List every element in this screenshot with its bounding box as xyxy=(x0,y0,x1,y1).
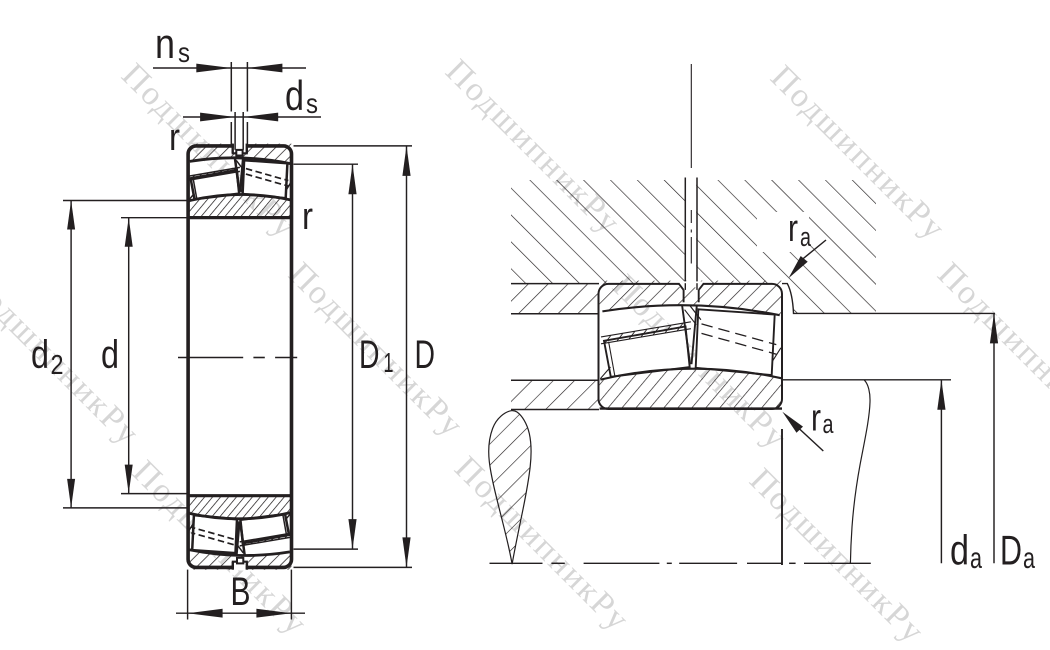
svg-text:a: a xyxy=(823,409,835,439)
svg-text:r: r xyxy=(302,196,313,238)
svg-text:ПодшипникРу: ПодшипникРу xyxy=(930,255,1050,445)
svg-text:ПодшипникРу: ПодшипникРу xyxy=(1045,445,1050,635)
svg-text:s: s xyxy=(178,37,190,68)
svg-text:r: r xyxy=(169,117,180,159)
svg-text:d: d xyxy=(285,72,304,119)
svg-text:ПодшипникРу: ПодшипникРу xyxy=(0,263,147,453)
svg-text:a: a xyxy=(1023,542,1035,575)
svg-text:D: D xyxy=(415,333,436,377)
svg-text:r: r xyxy=(788,208,798,250)
svg-text:a: a xyxy=(800,222,812,252)
svg-text:d: d xyxy=(31,333,49,377)
svg-text:ПодшипникРу: ПодшипникРу xyxy=(742,461,932,650)
svg-text:d: d xyxy=(101,333,119,377)
svg-text:D: D xyxy=(1000,527,1022,574)
svg-text:D: D xyxy=(359,333,380,377)
svg-text:ПодшипникРу: ПодшипникРу xyxy=(447,449,637,639)
svg-text:2: 2 xyxy=(51,349,64,380)
svg-text:d: d xyxy=(950,527,969,574)
svg-text:a: a xyxy=(970,542,982,575)
svg-text:r: r xyxy=(811,398,821,440)
svg-text:1: 1 xyxy=(384,347,394,378)
svg-text:B: B xyxy=(231,570,251,614)
svg-text:s: s xyxy=(306,88,318,119)
svg-text:n: n xyxy=(155,20,175,67)
